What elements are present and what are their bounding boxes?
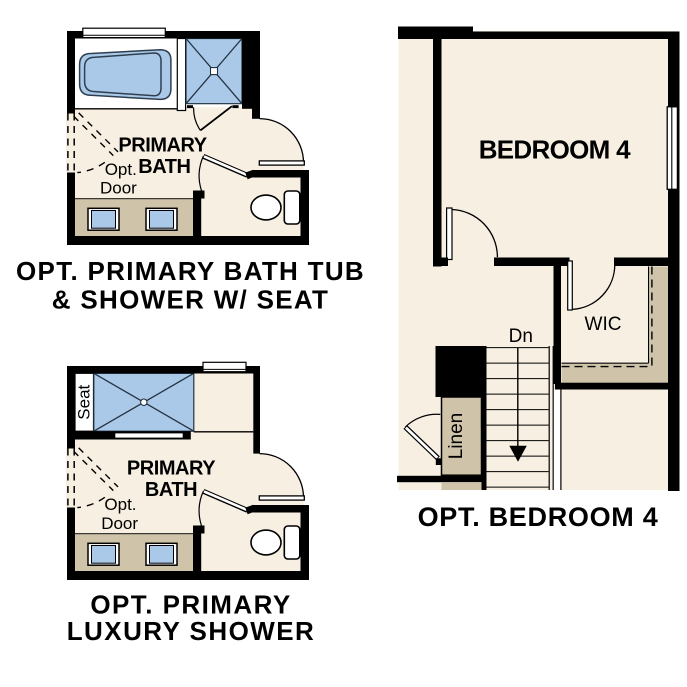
svg-text:Linen: Linen — [446, 413, 467, 460]
svg-text:Door: Door — [100, 178, 137, 197]
svg-text:OPT. PRIMARY: OPT. PRIMARY — [90, 590, 291, 620]
svg-text:BATH: BATH — [145, 479, 197, 501]
svg-text:& SHOWER W/ SEAT: & SHOWER W/ SEAT — [52, 285, 329, 315]
svg-text:LUXURY SHOWER: LUXURY SHOWER — [67, 616, 316, 646]
svg-text:BATH: BATH — [138, 156, 190, 178]
svg-text:PRIMARY: PRIMARY — [118, 135, 207, 157]
svg-text:BEDROOM 4: BEDROOM 4 — [479, 134, 631, 164]
svg-text:OPT. PRIMARY BATH TUB: OPT. PRIMARY BATH TUB — [16, 256, 365, 286]
svg-text:OPT. BEDROOM 4: OPT. BEDROOM 4 — [418, 502, 659, 532]
svg-text:Opt.: Opt. — [105, 160, 137, 179]
svg-text:PRIMARY: PRIMARY — [127, 458, 216, 480]
svg-text:Door: Door — [101, 514, 138, 533]
svg-text:Opt.: Opt. — [104, 495, 136, 514]
svg-text:Seat: Seat — [75, 384, 94, 419]
svg-text:WIC: WIC — [585, 314, 622, 335]
svg-text:Dn: Dn — [509, 326, 533, 347]
